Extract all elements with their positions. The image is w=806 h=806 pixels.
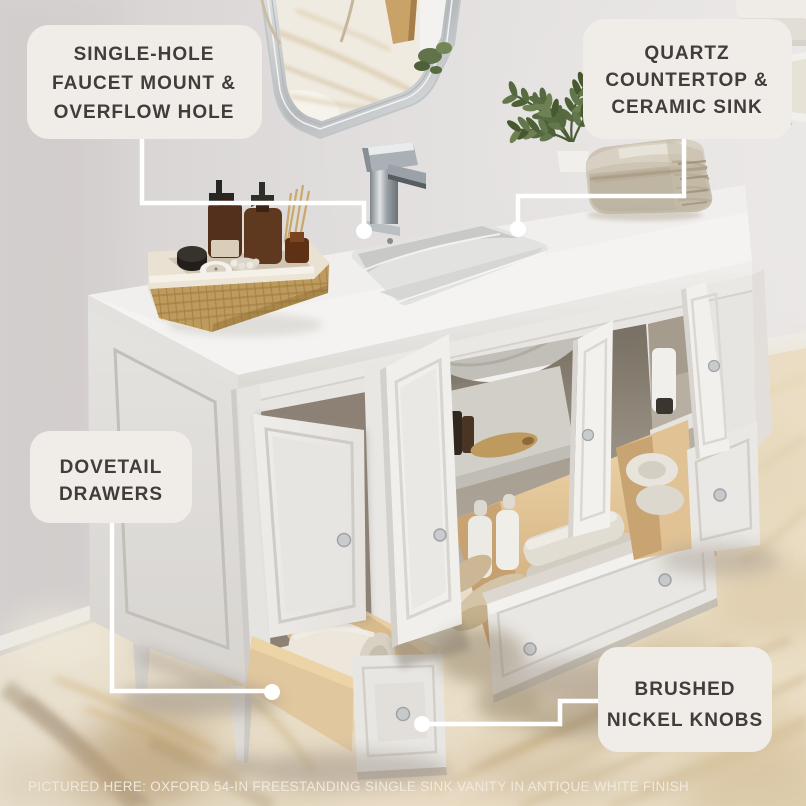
svg-text:OVERFLOW HOLE: OVERFLOW HOLE [54, 102, 235, 123]
svg-text:FAUCET MOUNT &: FAUCET MOUNT & [52, 73, 236, 94]
svg-text:BRUSHED: BRUSHED [635, 679, 736, 700]
svg-text:CERAMIC SINK: CERAMIC SINK [611, 97, 762, 118]
svg-text:PICTURED HERE: OXFORD 54-IN FR: PICTURED HERE: OXFORD 54-IN FREESTANDING… [28, 779, 689, 794]
svg-text:QUARTZ: QUARTZ [644, 43, 729, 64]
svg-text:DOVETAIL: DOVETAIL [60, 457, 163, 478]
svg-text:DRAWERS: DRAWERS [59, 484, 163, 505]
svg-text:SINGLE-HOLE: SINGLE-HOLE [74, 44, 215, 65]
svg-text:NICKEL KNOBS: NICKEL KNOBS [607, 710, 763, 731]
svg-text:COUNTERTOP &: COUNTERTOP & [605, 70, 768, 91]
